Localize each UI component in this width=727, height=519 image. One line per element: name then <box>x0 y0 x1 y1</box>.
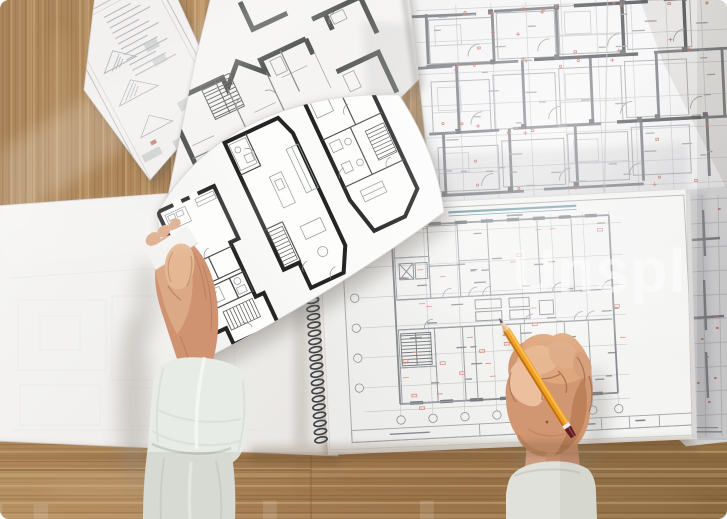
svg-text:Unsplash: Unsplash <box>0 483 480 519</box>
svg-text:Unspl: Unspl <box>512 237 686 305</box>
